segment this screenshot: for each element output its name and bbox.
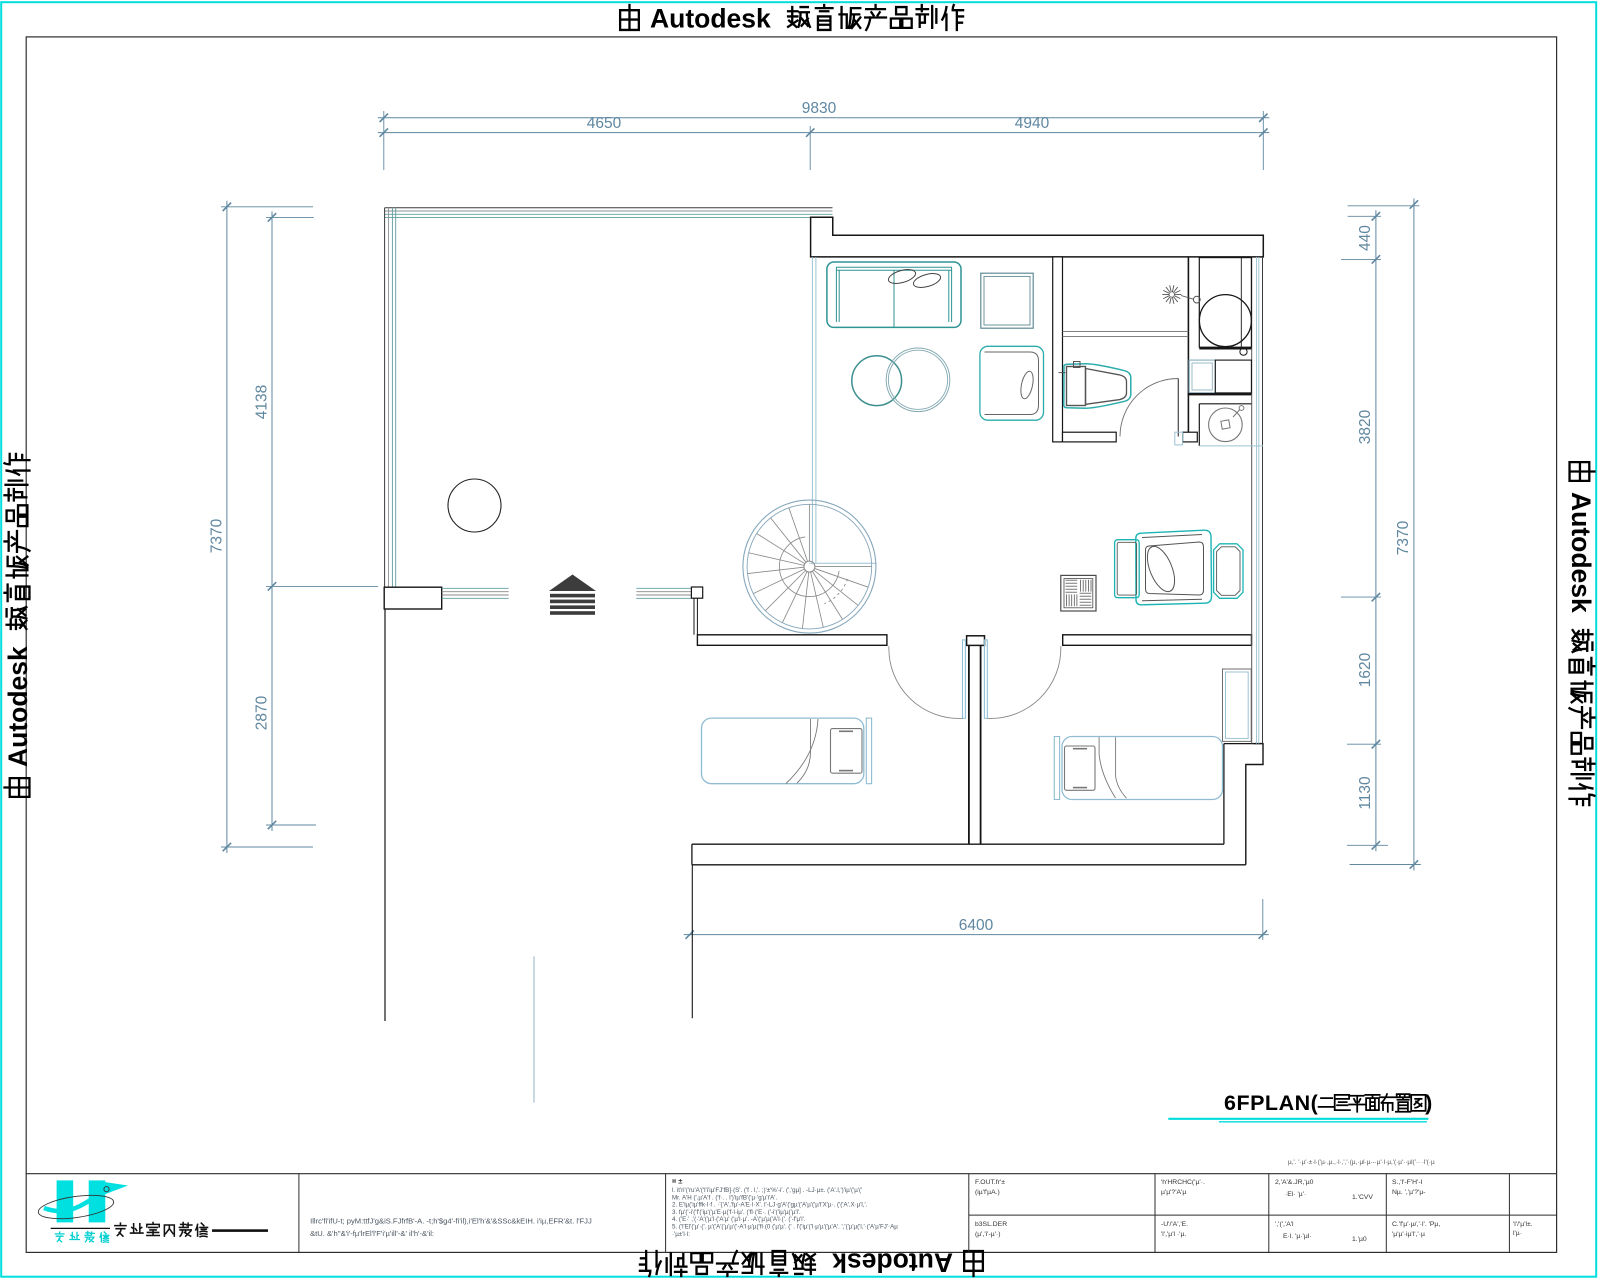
svg-text:1.'µ0: 1.'µ0 (1352, 1236, 1367, 1243)
svg-text:'µ'µ'·iµ'l','·µ: 'µ'µ'·iµ'l','·µ (1392, 1231, 1425, 1238)
svg-text:6400: 6400 (959, 917, 994, 934)
svg-text:Illrc'fi'ifU-t; pyM:ttfJ'g&iS.: Illrc'fi'ifU-t; pyM:ttfJ'g&iS.FJfrfB'-A.… (308, 1217, 592, 1226)
svg-text:Mr. A'H ('.µ'A'f . ('f·. . l'): Mr. A'H ('.µ'A'f . ('f·. . l')'iµ'fB'('µ… (672, 1194, 777, 1201)
svg-text:'l','µ'l ·'µ.: 'l','µ'l ·'µ. (1161, 1231, 1186, 1238)
svg-text:7370: 7370 (1395, 520, 1412, 555)
svg-text:'l'/'µ'l±.: 'l'/'µ'l±. (1513, 1221, 1533, 1228)
svg-text:-U'/'A','E.: -U'/'A','E. (1161, 1221, 1188, 1228)
svg-text:b3SL.DER: b3SL.DER (975, 1221, 1007, 1228)
svg-text:440: 440 (1357, 225, 1374, 251)
svg-text:C.'f'µ'·µ/,'·l'. 'Pµ,: C.'f'µ'·µ/,'·l'. 'Pµ, (1392, 1221, 1440, 1228)
svg-text:9830: 9830 (802, 100, 837, 117)
svg-text:3820: 3820 (1357, 409, 1374, 444)
svg-text:7370: 7370 (209, 518, 226, 553)
svg-text:2. E'lµ('iµ'ffk·l·f . ·'('A',': 2. E'lµ('iµ'ffk·l·f . ·'('A','fµ'-A'E·l·… (672, 1202, 868, 1209)
svg-text:2870: 2870 (254, 695, 271, 730)
svg-text:(µ','i'-µ'·): (µ','i'-µ'·) (975, 1231, 1000, 1238)
svg-text:5. ('l'El'('µ'·('. µ'('A'('µ'µ: 5. ('l'El'('µ'·('. µ'('A'('µ'µ'('-A'l·µ'… (672, 1224, 898, 1231)
svg-text:E·l. 'µ·'µl·: E·l. 'µ·'µl· (1283, 1233, 1312, 1240)
svg-text:1620: 1620 (1357, 652, 1374, 687)
svg-text:·El· 'µ'·: ·El· 'µ'· (1285, 1191, 1306, 1198)
svg-text:1.'CVV: 1.'CVV (1352, 1194, 1373, 1201)
svg-text:4650: 4650 (587, 115, 622, 132)
svg-text:l. it'ri'('ru'A'('l'i'iµ'FJ'fB: l. it'ri'('ru'A'('l'i'iµ'FJ'fB]·(S'. ('f… (672, 1187, 862, 1194)
svg-text:µ,'. '·µ'·±·l·('µ·,µ.,·l·,','·: µ,'. '·µ'·±·l·('µ·,µ.,·l·,','·(µ,·µl·µ·-… (1288, 1159, 1435, 1166)
svg-text:l'µ·: l'µ· (1513, 1230, 1522, 1237)
svg-text:4138: 4138 (254, 385, 271, 419)
svg-text:4940: 4940 (1015, 115, 1050, 132)
svg-text:1130: 1130 (1357, 776, 1374, 810)
svg-text:Nµ. ','µ'?'µ-: Nµ. ','µ'?'µ- (1392, 1189, 1426, 1196)
svg-text:S.,'l'-F'H'-l: S.,'l'-F'H'-l (1392, 1179, 1423, 1186)
svg-text:): ) (1425, 1091, 1432, 1115)
svg-text:6FPLAN(: 6FPLAN( (1224, 1091, 1319, 1115)
svg-text:¤ ±: ¤ ± (672, 1177, 682, 1186)
svg-text:3. fµ'('-i'('f'('iµ'('µ'E·µ('f: 3. fµ'('-i'('f'('iµ'('µ'E·µ('f·l·iµ'. ('… (672, 1209, 801, 1216)
svg-text:F.OUT.fr'±: F.OUT.fr'± (975, 1179, 1005, 1186)
svg-text:µ'µ'?'A'µ: µ'µ'?'A'µ (1161, 1189, 1186, 1196)
svg-text:(iµ'f'µA.): (iµ'f'µA.) (975, 1189, 1000, 1196)
svg-text:'h'HRCHC('µ'·.: 'h'HRCHC('µ'·. (1161, 1179, 1205, 1186)
svg-text:&tU. &'h''&'i'-fµ'lrEl'l'F'i'µ: &tU. &'h''&'i'-fµ'lrEl'l'F'i'µ'ill'-&' i… (308, 1229, 434, 1238)
svg-text:·'µ±'l·l:: ·'µ±'l·l: (672, 1231, 690, 1238)
svg-text:4. ('E·' ,'(·'A'('µ'l·('A'µ' (: 4. ('E·' ,'(·'A'('µ'l·('A'µ' ('µ'l·µ'. -… (672, 1216, 806, 1223)
svg-text:2,'A'&.JR,'µ0: 2,'A'&.JR,'µ0 (1275, 1179, 1314, 1186)
svg-text:','(','A'l: ','(','A'l (1275, 1221, 1294, 1228)
